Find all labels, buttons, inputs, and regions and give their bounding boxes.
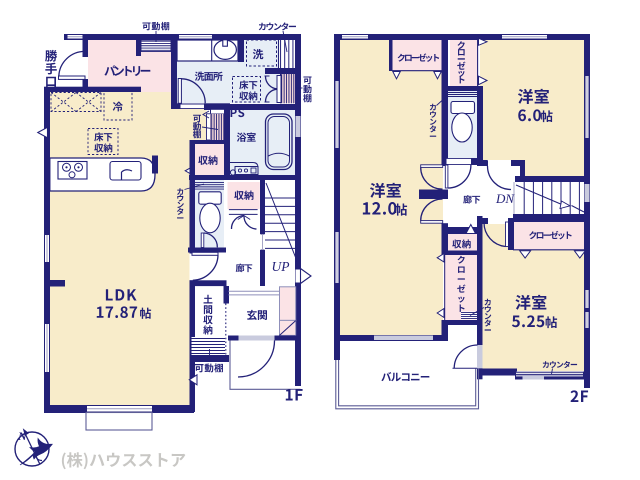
svg-text:N: N — [17, 429, 28, 443]
svg-text:UP: UP — [272, 259, 290, 274]
svg-text:DN: DN — [495, 191, 515, 206]
